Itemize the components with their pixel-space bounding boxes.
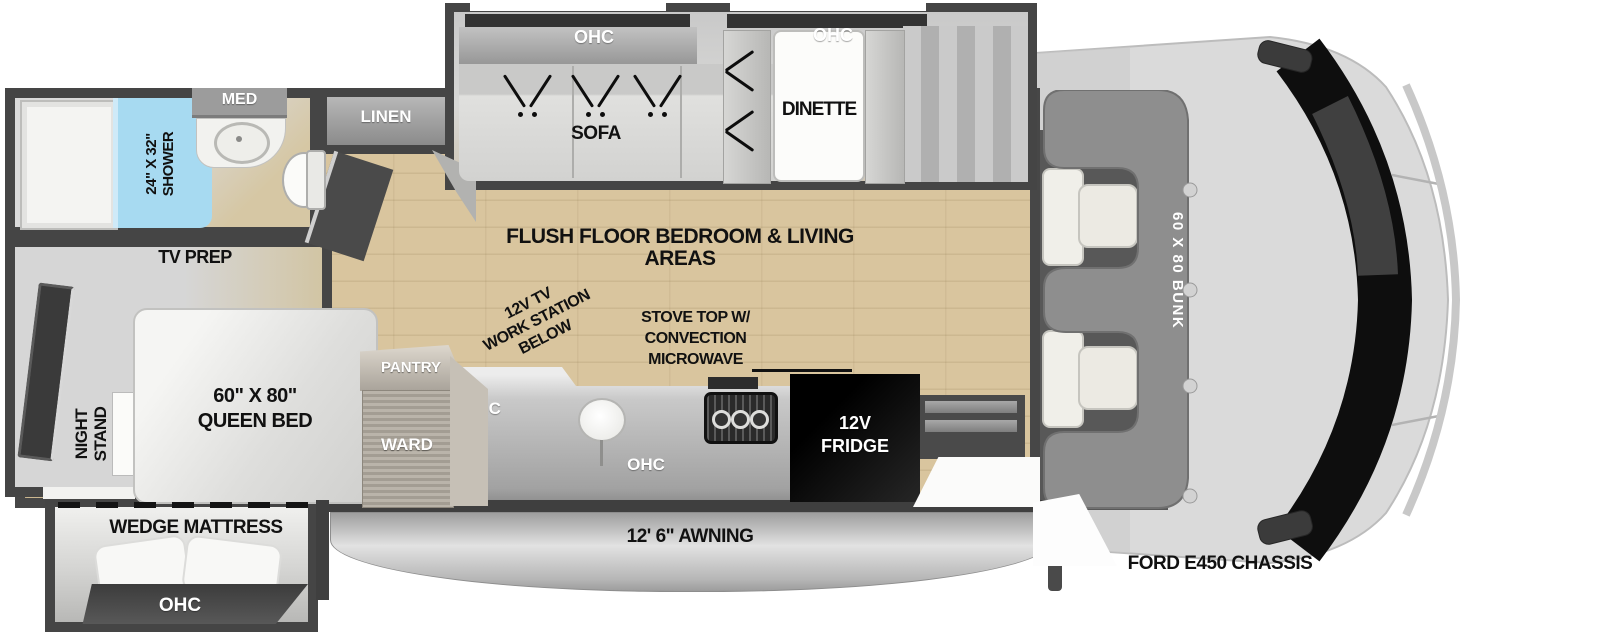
bedroom-ohc-label: OHC xyxy=(130,596,230,616)
dinette-ohc-label: OHC xyxy=(798,26,868,46)
stove-label: STOVE TOP W/ CONVECTION MICROWAVE xyxy=(618,308,773,370)
stitch-dot xyxy=(518,112,523,117)
slideout-window xyxy=(730,3,926,11)
night-line1: NIGHT xyxy=(73,378,92,490)
shower-pan xyxy=(20,100,118,230)
fridge-label: 12V FRIDGE xyxy=(790,412,920,459)
shower-size: 24" X 32" xyxy=(143,105,160,223)
stitch-dot xyxy=(600,112,605,117)
dinette-window-wall xyxy=(903,26,1028,182)
sofa-ohc-label: OHC xyxy=(556,28,632,48)
stove-line2: CONVECTION xyxy=(618,329,773,350)
stove-line1: STOVE TOP W/ xyxy=(618,308,773,329)
slideout-dashed-line xyxy=(58,502,308,508)
kitchen-ohc-label: OHC xyxy=(616,456,676,476)
stitch-dot xyxy=(662,112,667,117)
microwave-pointer-line xyxy=(752,369,852,372)
tv-prep-label: TV PREP xyxy=(140,248,250,267)
stove-burner xyxy=(750,410,769,429)
rv-floorplan-diagram: 60 X 80 BUNK FORD E450 CHASSIS FLUSH FLO… xyxy=(0,0,1600,644)
med-label: MED xyxy=(192,92,287,109)
stitch-dot xyxy=(586,112,591,117)
fridge-line1: 12V xyxy=(790,412,920,435)
bunk-rivet xyxy=(1183,183,1197,197)
stitch-dot xyxy=(532,112,537,117)
toilet-tank xyxy=(306,150,326,210)
night-stand-label: NIGHT STAND xyxy=(73,378,111,490)
shower-word: SHOWER xyxy=(160,105,177,223)
bunk-label: 60 X 80 BUNK xyxy=(1169,212,1186,329)
awning-label: 12' 6" AWNING xyxy=(590,527,790,547)
stove-vent xyxy=(708,377,758,389)
kitchen-faucet xyxy=(600,440,603,466)
cabover-bunk: 60 X 80 BUNK xyxy=(1040,90,1210,510)
stove-line3: MICROWAVE xyxy=(618,350,773,371)
wedge-mattress-label: WEDGE MATTRESS xyxy=(88,518,304,538)
sofa-cushion-divider xyxy=(680,66,682,178)
entry-step xyxy=(925,420,1017,432)
dinette-label: DINETTE xyxy=(762,100,876,120)
bed-line2: QUEEN BED xyxy=(150,409,360,434)
stove-burner xyxy=(731,410,750,429)
stitch-dot xyxy=(648,112,653,117)
kitchen-sink xyxy=(578,398,626,442)
awning xyxy=(330,512,1054,592)
sink-drain xyxy=(236,136,242,142)
slideout-window xyxy=(470,3,666,11)
night-line2: STAND xyxy=(92,378,111,490)
bed-line1: 60" X 80" xyxy=(150,384,360,409)
linen-label: LINEN xyxy=(330,108,442,126)
shower-label: 24" X 32" SHOWER xyxy=(143,105,183,223)
entry-step xyxy=(925,401,1017,413)
fridge-line2: FRIDGE xyxy=(790,435,920,458)
flush-floor-label: FLUSH FLOOR BEDROOM & LIVING AREAS xyxy=(480,226,880,270)
bathroom-sink xyxy=(214,122,270,164)
chassis-label: FORD E450 CHASSIS xyxy=(1100,554,1340,574)
ward-label: WARD xyxy=(366,436,448,454)
sofa-ohc-cabinet xyxy=(465,14,690,28)
queen-bed-label: 60" X 80" QUEEN BED xyxy=(150,384,360,434)
awning-bracket xyxy=(316,500,329,600)
sofa-cushion-divider xyxy=(572,66,574,178)
stove-burner xyxy=(712,410,731,429)
sofa-label: SOFA xyxy=(558,124,634,144)
bunk-rivet xyxy=(1183,379,1197,393)
pantry-label: PANTRY xyxy=(366,360,456,376)
bunk-rivet xyxy=(1183,489,1197,503)
